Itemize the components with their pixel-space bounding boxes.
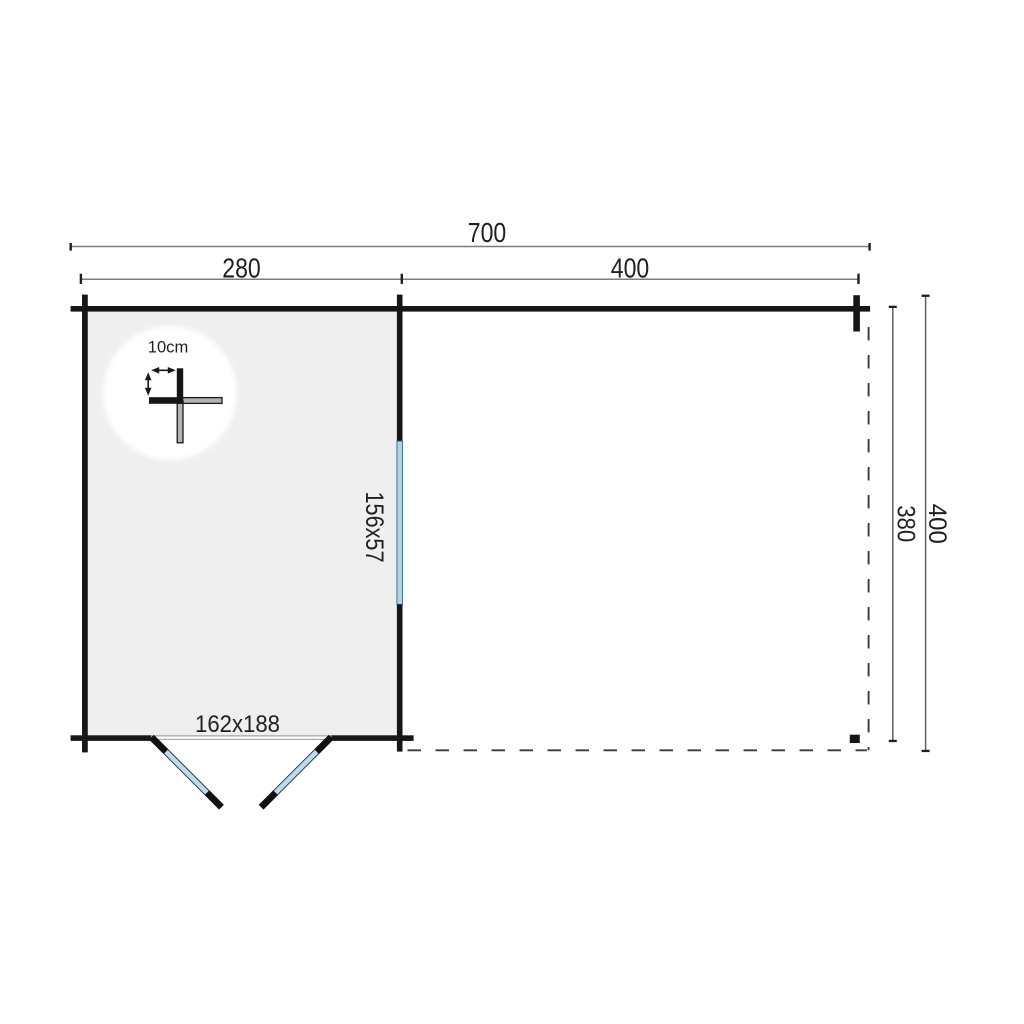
svg-text:700: 700 bbox=[468, 217, 507, 248]
svg-text:156x57: 156x57 bbox=[360, 492, 388, 563]
svg-text:380: 380 bbox=[891, 505, 919, 542]
svg-text:10cm: 10cm bbox=[148, 337, 189, 356]
svg-text:280: 280 bbox=[222, 253, 261, 284]
svg-text:400: 400 bbox=[611, 253, 650, 284]
svg-text:400: 400 bbox=[923, 504, 951, 544]
svg-text:162x188: 162x188 bbox=[195, 711, 280, 738]
